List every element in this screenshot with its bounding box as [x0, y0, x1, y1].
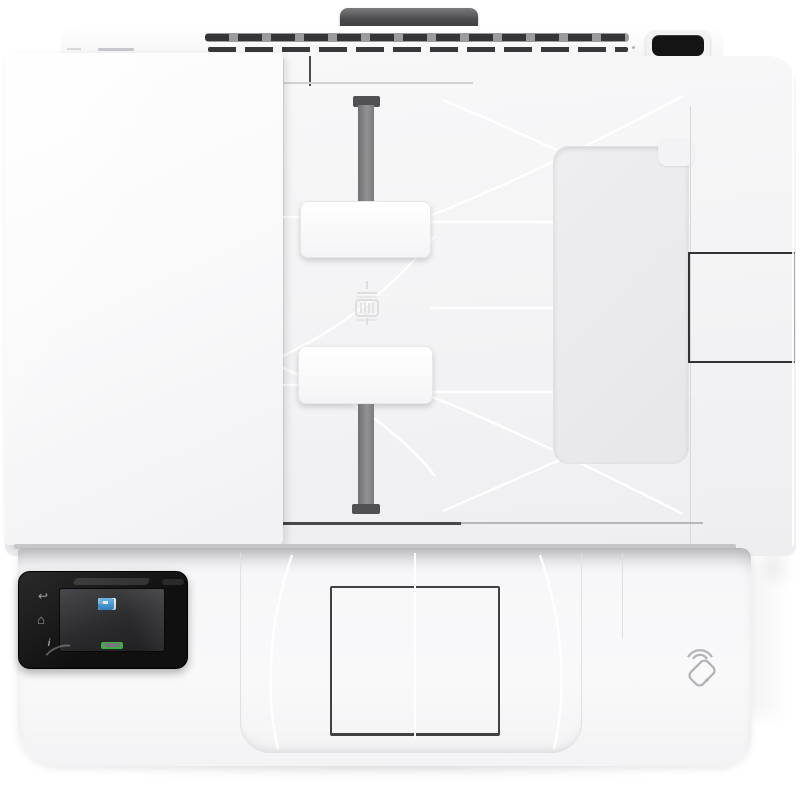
paper-load-emboss-icon	[349, 280, 385, 326]
right-edge-highlight	[792, 68, 794, 546]
home-screen-apps: Copy Scan Fax	[60, 598, 164, 628]
vent-grille-row-1	[205, 33, 629, 42]
back-button[interactable]: ↩	[35, 590, 51, 602]
status-text-blur	[104, 643, 120, 647]
output-recess-tab	[658, 138, 694, 166]
rear-seam-mark	[98, 48, 134, 51]
front-divider-line	[414, 553, 416, 739]
panel-gloss	[162, 579, 184, 585]
nfc-tap-icon	[678, 637, 726, 691]
panel-gloss	[73, 578, 151, 585]
side-hatch-outline	[688, 252, 795, 363]
deck-front-edge-light	[461, 522, 703, 524]
rear-dot-mark	[632, 46, 635, 49]
paper-guide-upper[interactable]	[300, 201, 431, 258]
output-tray-recess	[553, 146, 689, 464]
printer-front-panel-area: ↩ ⌂ i Copy Scan Fax	[18, 548, 751, 766]
guide-rail-lower	[358, 404, 374, 505]
app-label: Fax	[98, 600, 107, 606]
guide-rail-cap-bottom	[352, 504, 380, 514]
printer-product-photo: ↩ ⌂ i Copy Scan Fax	[0, 0, 800, 800]
rear-port-opening	[652, 35, 704, 56]
deck-front-edge-dark	[281, 522, 461, 525]
vent-grille-row-2	[208, 47, 628, 52]
scanner-lid	[5, 53, 283, 545]
cast-shadow-corner	[750, 556, 790, 716]
rear-seam-mark	[67, 48, 81, 50]
home-button[interactable]: ⌂	[33, 614, 49, 626]
paper-guide-lower[interactable]	[298, 346, 433, 404]
front-seam	[622, 553, 623, 639]
touchscreen[interactable]: Copy Scan Fax	[59, 588, 165, 652]
guide-rail-upper	[358, 105, 374, 203]
control-panel: ↩ ⌂ i Copy Scan Fax	[18, 571, 188, 669]
